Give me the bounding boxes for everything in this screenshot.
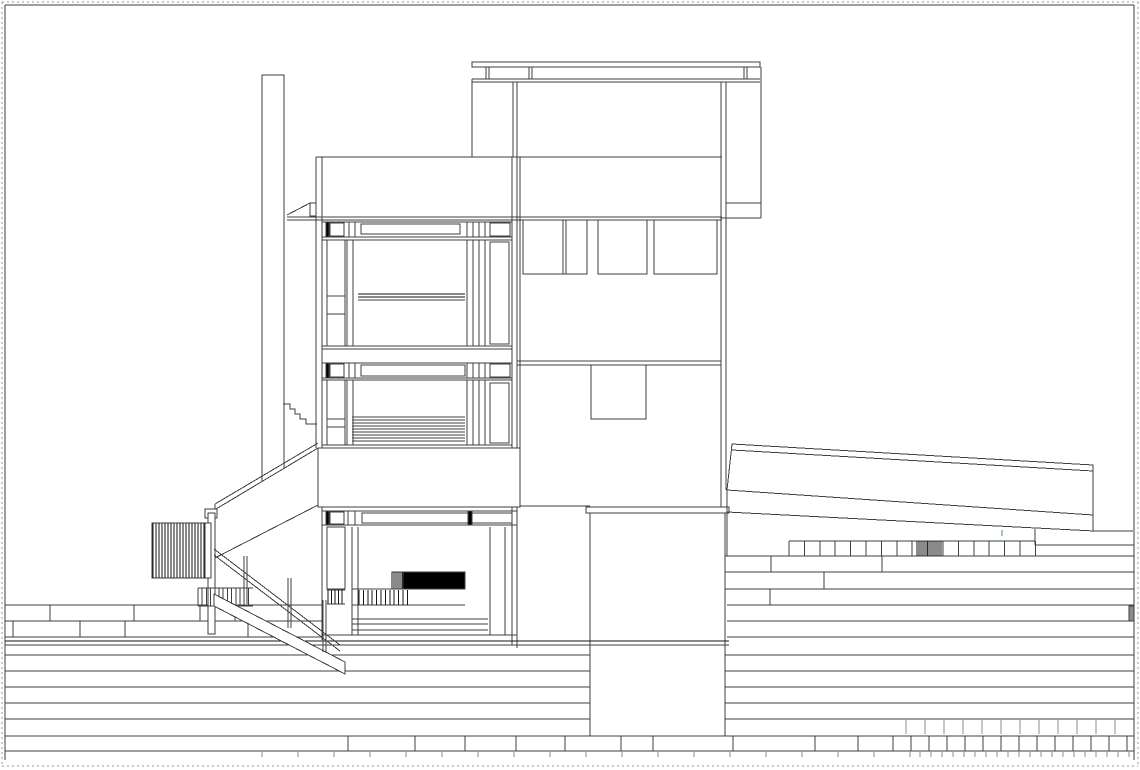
elevation-drawing: [0, 0, 1140, 770]
exterior-stair: [152, 443, 345, 674]
wing-floor3-glazing: [283, 363, 512, 445]
roof-canopy: [472, 62, 760, 82]
border-frame: [2, 2, 1138, 766]
balcony-slab: [318, 448, 520, 507]
drawing-sheet: [0, 0, 1140, 770]
base-pier: [586, 507, 729, 736]
penthouse: [472, 67, 761, 218]
ramp: [727, 444, 1134, 556]
chimney: [262, 75, 284, 495]
wing-ground-glazing: [322, 511, 517, 635]
terrain-steps: [5, 556, 1134, 757]
